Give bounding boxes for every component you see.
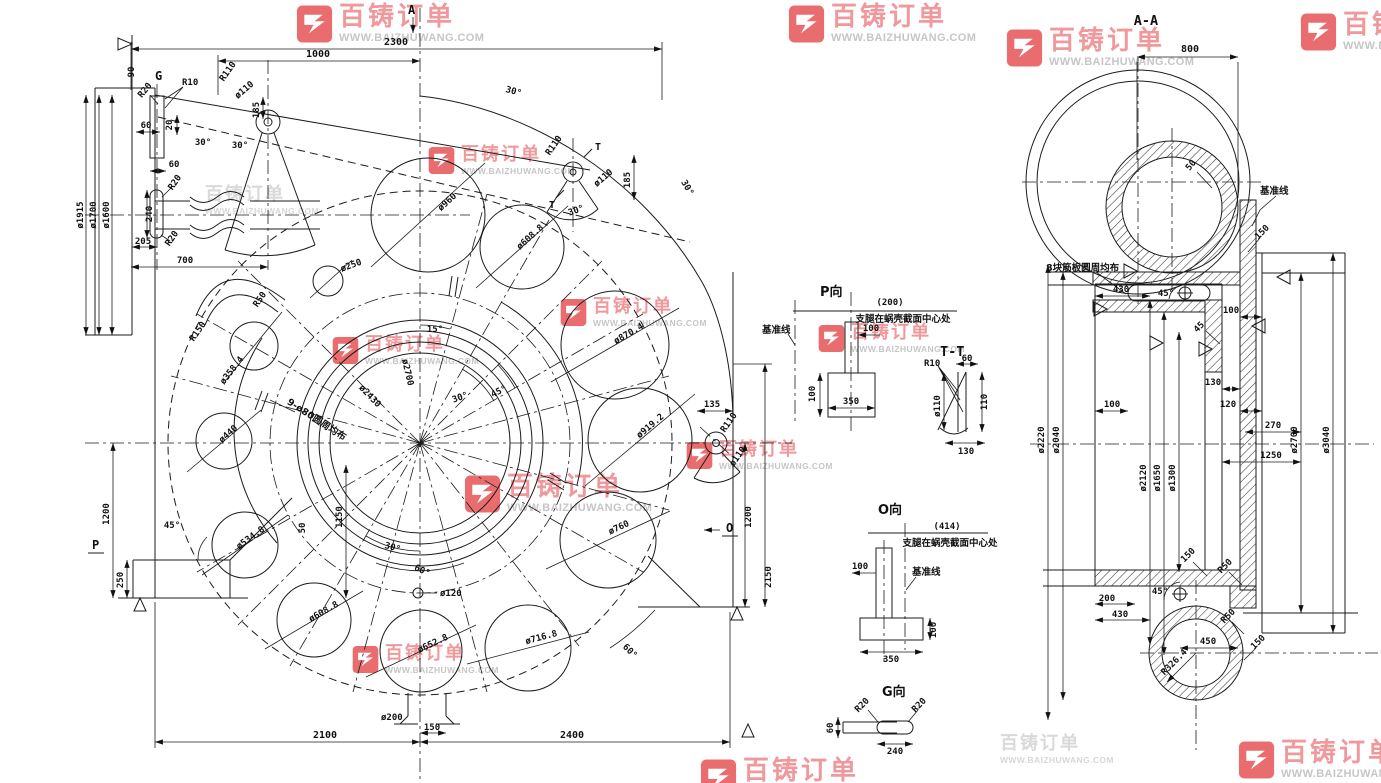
dim-label: 100	[852, 562, 868, 572]
dim-label: 270	[1265, 421, 1281, 431]
section-aa: A-A 800 50 基准线 150 8块筋板圆周均布 430 45° 100 …	[1022, 13, 1378, 750]
dim-label: ø1600	[102, 201, 112, 228]
angle-label: 30°	[451, 391, 470, 406]
dim-label: 130	[1205, 378, 1221, 388]
dim-label: 2400	[560, 730, 584, 741]
dim-label: 90	[127, 67, 137, 78]
dim-label: (200)	[876, 298, 903, 308]
bottom-flange	[1095, 570, 1240, 586]
mid-plate	[1093, 300, 1205, 312]
dim-label: 800	[1181, 44, 1199, 55]
hole-label: ø919.2	[635, 412, 666, 441]
angle-label: 30°	[383, 541, 401, 555]
dim-label: (414)	[933, 522, 960, 532]
view-title: O向	[878, 502, 902, 518]
note-label: 8块筋板圆周均布	[1046, 262, 1120, 274]
right-outlet	[638, 272, 772, 607]
dim-label: 60	[141, 121, 152, 131]
angle-label: 45°	[1158, 289, 1174, 299]
view-marker-p: P	[92, 538, 99, 552]
cad-drawing-page: 百铸订单WWW.BAIZHUWANG.COM 百铸订单WWW.BAIZHUWAN…	[0, 0, 1381, 783]
hole-label: ø608.8	[515, 223, 546, 252]
dim-label: ø1700	[89, 201, 99, 228]
dim-label: 60	[962, 354, 973, 364]
dim-label: R110	[544, 134, 565, 158]
dim-label: 1200	[744, 506, 754, 528]
left-support-leg	[118, 498, 292, 598]
view-marker-o: O	[726, 521, 733, 535]
casing-wall	[1240, 200, 1256, 590]
angle-label: 30°	[195, 138, 211, 148]
inner-wall	[1205, 300, 1222, 372]
hole-label: ø652.8	[416, 633, 450, 656]
datum-label: 基准线	[911, 566, 941, 578]
angle-label: 60°	[620, 642, 639, 661]
dim-label: R10	[924, 359, 940, 369]
datum-label: 基准线	[761, 324, 791, 336]
view-marker-g: G	[155, 69, 162, 83]
section-label: T	[595, 142, 601, 153]
note-label: 支腿在蜗壳截面中心处	[901, 537, 998, 549]
hole-label: ø358.4	[218, 354, 246, 386]
dim-label: 2300	[384, 37, 408, 48]
dim-label: 150	[424, 723, 440, 733]
dim-label: 100	[863, 324, 879, 334]
dim-label: ø110	[233, 80, 256, 102]
angle-label: 30°	[678, 178, 695, 197]
dim-label: ø1300	[1168, 464, 1178, 491]
dim-label: ø1915	[76, 201, 86, 228]
dim-label: 240	[887, 747, 903, 757]
dim-label: ø2700	[1290, 426, 1300, 453]
angle-label: 45°	[164, 521, 180, 531]
dim-label: 100	[1223, 306, 1239, 316]
section-label: T	[549, 200, 555, 211]
dim-label: 60	[826, 723, 836, 734]
view-title: P向	[820, 284, 843, 300]
dim-label: 1200	[102, 503, 112, 525]
dim-label: 20	[165, 120, 175, 131]
dim-label: 130	[958, 447, 974, 457]
inlet-box	[85, 35, 183, 598]
dim-label: 450	[1200, 637, 1216, 647]
dim-label: ø2430	[356, 383, 382, 409]
view-g: G向 R20 R20 60 240	[826, 684, 929, 757]
dim-label: R50	[252, 290, 270, 309]
dim-label: 185	[252, 102, 262, 118]
view-tt: T-T R10 60 ø110 110 130	[924, 344, 990, 457]
datum-label: 基准线	[1259, 185, 1289, 197]
dim-label: 100	[808, 386, 818, 402]
hole-label: ø534.8	[235, 525, 267, 552]
dim-label: ø250	[339, 258, 363, 275]
dim-label: 1150	[335, 506, 345, 528]
dim-label: ø1650	[1153, 464, 1163, 491]
dim-label: 120	[1220, 400, 1236, 410]
dim-label: 185	[623, 172, 633, 188]
dim-label: R20	[910, 696, 929, 715]
hole-label: ø870.4	[612, 322, 646, 347]
view-p: P向 (200) 支腿在蜗壳截面中心处 基准线 100 100 350	[761, 284, 957, 432]
dim-label: 110	[980, 394, 990, 410]
dim-label: 1250	[1260, 451, 1282, 461]
angle-label: 45°	[1152, 587, 1168, 597]
section-title: A-A	[1134, 13, 1158, 29]
dim-label: ø2220	[1037, 426, 1047, 453]
dim-label: R20	[167, 173, 185, 192]
dim-label: ø120	[440, 589, 462, 599]
dim-label: ø2700	[399, 358, 415, 387]
dim-label: ø2120	[1139, 464, 1149, 491]
angle-label: 30°	[504, 85, 522, 99]
dim-label: 350	[843, 397, 859, 407]
dim-label: 150	[1249, 633, 1268, 652]
dim-label: ø110	[592, 168, 615, 190]
dim-label: 2150	[764, 566, 774, 588]
dim-label: R110	[218, 60, 239, 84]
dim-label: 240	[145, 206, 155, 222]
dim-label: R110	[719, 411, 740, 435]
hole-label: ø440	[217, 424, 240, 446]
bottom-nozzle	[394, 693, 460, 724]
neck	[1230, 586, 1256, 608]
hole-label: ø960	[436, 192, 459, 214]
dim-label: 60	[169, 160, 180, 170]
dim-label: 250	[116, 572, 126, 588]
dim-label: 205	[135, 237, 151, 247]
view-o: O向 (414) 支腿在蜗壳截面中心处 基准线 100 100 350	[852, 502, 998, 665]
view-title: G向	[882, 684, 906, 700]
dim-label: ø200	[381, 713, 403, 723]
dim-label: 100	[1104, 400, 1120, 410]
dim-label: R10	[182, 78, 198, 88]
section-label: A	[408, 3, 416, 17]
hole-label: ø608.8	[307, 600, 340, 625]
dim-label: 430	[1112, 610, 1128, 620]
dim-label: 200	[1099, 594, 1115, 604]
dim-label: 50	[298, 523, 308, 534]
dim-label: ø2040	[1052, 426, 1062, 453]
dim-label: 350	[883, 655, 899, 665]
dim-label: 150	[1179, 546, 1198, 565]
volute-section-circles	[187, 158, 695, 692]
dim-label: 1000	[306, 49, 330, 60]
dim-label: 430	[1113, 285, 1129, 295]
angle-label: 15°	[427, 325, 443, 335]
front-view: A 2300 1000 90 G R10 R20 R110 ø110 185 6…	[76, 3, 792, 780]
dim-label: R20	[853, 696, 872, 715]
angle-label: 45°	[490, 384, 509, 400]
dim-label: ø3040	[1322, 426, 1332, 453]
dim-label: 700	[177, 256, 193, 266]
dim-label: 100	[929, 622, 939, 638]
dim-label: ø110	[933, 395, 943, 417]
dim-label: ø110	[728, 445, 749, 469]
angle-label: 30°	[232, 141, 248, 151]
dim-label: 2100	[313, 730, 337, 741]
dim-label: 135	[704, 400, 720, 410]
dim-label: R20	[164, 229, 182, 248]
